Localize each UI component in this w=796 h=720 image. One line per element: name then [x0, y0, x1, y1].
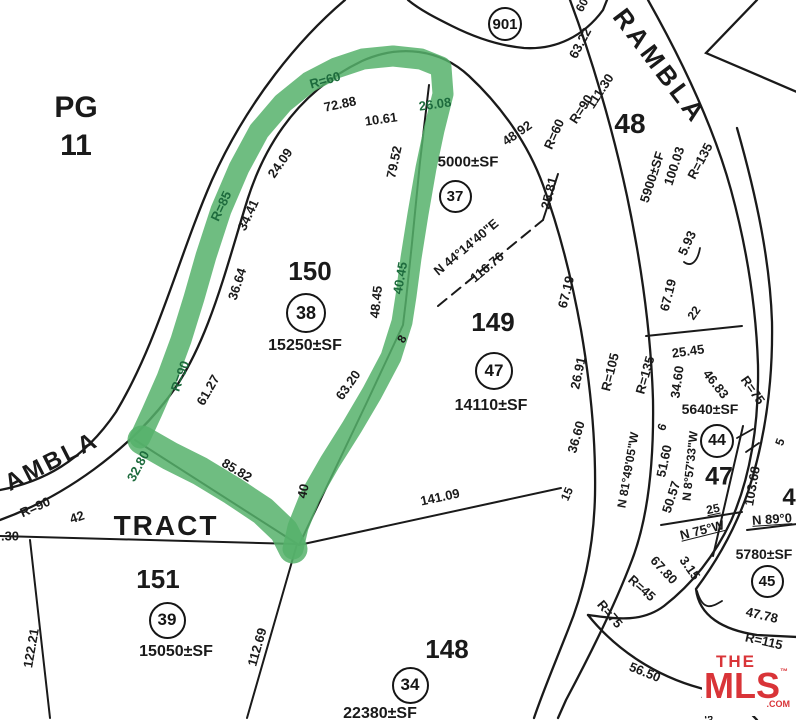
dimension: 40 [295, 483, 311, 500]
mls-logo: THE MLS™ .COM [702, 652, 796, 716]
lot-number: 48 [614, 110, 645, 138]
lot-number-partial: 4 [782, 486, 795, 510]
lot-area: 22380±SF [343, 706, 417, 720]
boundary-line [706, 0, 796, 92]
lot-number: 149 [471, 309, 514, 335]
road-edge [0, 0, 345, 490]
lot-circle: 45 [751, 565, 784, 598]
lot-circle: 901 [488, 7, 522, 41]
lot-circle: 44 [700, 424, 734, 458]
lot-area: 14110±SF [455, 398, 528, 414]
lot-area: 5640±SF [682, 402, 739, 416]
lot-area: 15250±SF [268, 338, 342, 354]
page-ref: 11 [60, 131, 92, 161]
lot-circle: 38 [286, 293, 326, 333]
lot-line [646, 326, 742, 336]
dimension: 25 [705, 502, 721, 517]
lot-number: 148 [425, 636, 468, 662]
lot-circle: 34 [392, 667, 429, 704]
lot-area: 5000±SF [438, 155, 499, 170]
plat-map: PG11TRACTAMBLARAMBLA4815015250±SF1491411… [0, 0, 796, 720]
tract-word: TRACT [114, 512, 219, 540]
lot-circle: 37 [439, 180, 472, 213]
lot-circle: 39 [149, 602, 186, 639]
trademark-symbol: ™ [780, 667, 788, 676]
page-ref: PG [54, 93, 97, 123]
bearing-partial: N 89°0 [752, 511, 793, 527]
lot-number: 151 [136, 566, 179, 592]
dimension-partial: .30 [1, 530, 19, 543]
lot-circle: 47 [475, 352, 513, 390]
lot-number: 47 [705, 465, 733, 490]
lot-area: 15050±SF [139, 644, 213, 660]
lot-area: 5780±SF [736, 547, 793, 561]
dimension: 48.45 [368, 285, 384, 319]
lot-number: 150 [288, 258, 331, 284]
